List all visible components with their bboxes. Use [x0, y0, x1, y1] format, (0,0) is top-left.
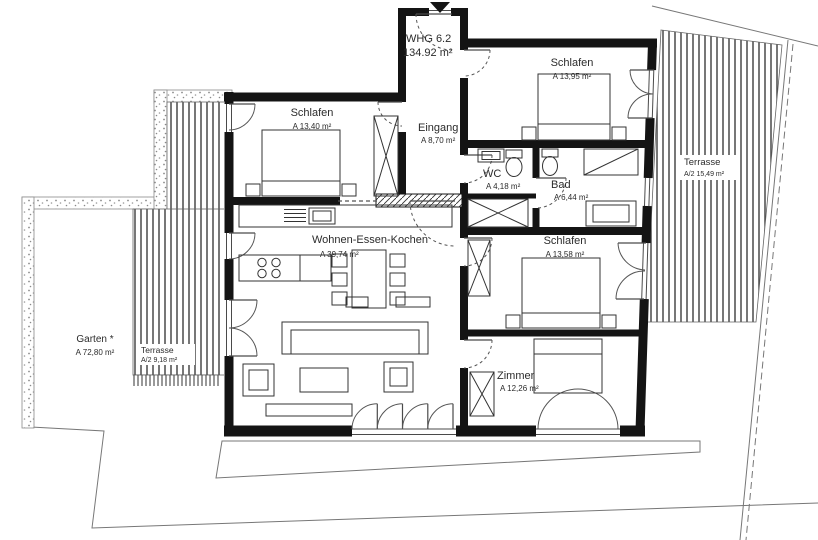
label-terrasse-east-name: Terrasse [684, 157, 720, 168]
label-schlafen1-area: A 13,40 m² [293, 122, 332, 131]
label-garten-area: A 72,80 m² [76, 348, 115, 357]
label-bad-area: A 6,44 m² [554, 193, 589, 202]
label-terrasse-west-name: Terrasse [141, 345, 174, 355]
label-terrasse-west: Terrasse A/2 9,18 m² [139, 344, 195, 365]
label-zimmer-area: A 12,26 m² [500, 384, 539, 393]
garden-wall-top [22, 197, 156, 209]
floorplan-drawing: WHG 6.2 134.92 m² Schlafen A 13,40 m² Sc… [0, 0, 818, 540]
label-garten-name: Garten * [76, 334, 113, 345]
terrace-wall-left [154, 90, 167, 211]
label-bad-name: Bad [551, 179, 571, 191]
paving-outline [216, 441, 700, 478]
label-schlafen1-name: Schlafen [291, 107, 334, 119]
label-terrasse-east-area: A/2 15,49 m² [684, 171, 725, 178]
garden-wall-left [22, 197, 34, 428]
label-zimmer-name: Zimmer [497, 370, 535, 382]
label-eingang-area: A 8,70 m² [421, 136, 456, 145]
label-terrasse-east: Terrasse A/2 15,49 m² [680, 155, 740, 180]
label-schlafen3-name: Schlafen [544, 235, 587, 247]
label-wc-area: A 4,18 m² [486, 182, 521, 191]
label-schlafen2-name: Schlafen [551, 57, 594, 69]
terrace-west-deck-upper [167, 102, 225, 210]
terrace-west [133, 102, 225, 386]
label-whg-title: WHG 6.2 [406, 33, 451, 45]
label-schlafen3-area: A 13,58 m² [546, 250, 585, 259]
terrace-west-edge-comb [133, 375, 220, 386]
label-wc-name: WC [483, 168, 501, 180]
label-terrasse-west-area: A/2 9,18 m² [141, 357, 178, 364]
label-schlafen2-area: A 13,95 m² [553, 72, 592, 81]
label-wohnen-name: Wohnen-Essen-Kochen [312, 234, 428, 246]
floorplan-page: WHG 6.2 134.92 m² Schlafen A 13,40 m² Sc… [0, 0, 818, 540]
label-whg-area: 134.92 m² [403, 47, 453, 59]
label-eingang-name: Eingang [418, 122, 458, 134]
label-wohnen-area: A 39,74 m² [320, 250, 359, 259]
